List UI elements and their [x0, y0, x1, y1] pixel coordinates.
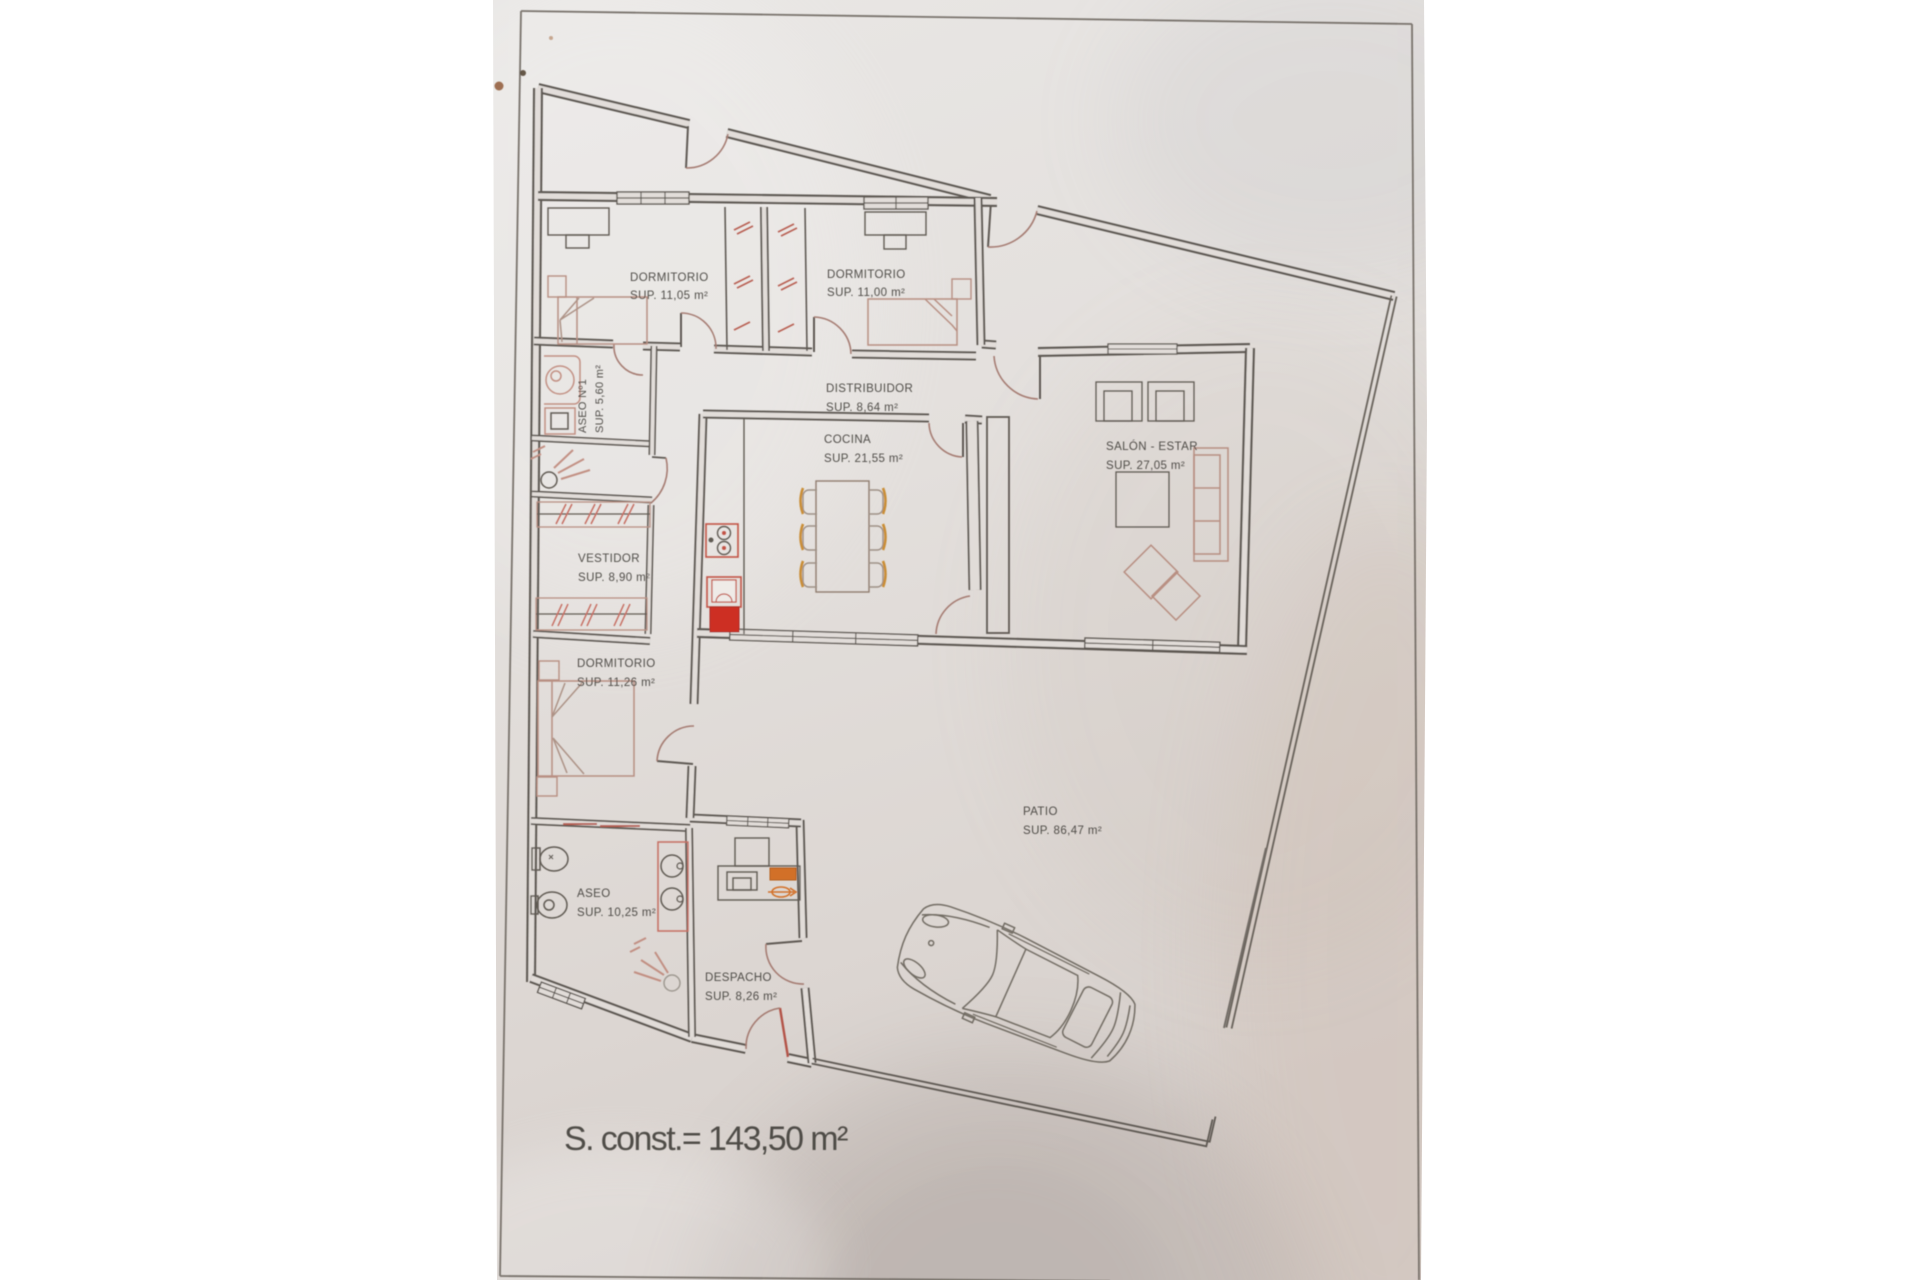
svg-text:VESTIDOR: VESTIDOR — [578, 553, 640, 565]
svg-text:DESPACHO: DESPACHO — [705, 972, 772, 984]
svg-text:SUP. 11,05 m²: SUP. 11,05 m² — [630, 290, 708, 302]
svg-text:SUP. 11,26 m²: SUP. 11,26 m² — [577, 677, 655, 689]
svg-text:SUP. 27,05 m²: SUP. 27,05 m² — [1106, 460, 1185, 472]
svg-text:COCINA: COCINA — [824, 434, 871, 446]
svg-text:DORMITORIO: DORMITORIO — [630, 272, 709, 284]
svg-text:DORMITORIO: DORMITORIO — [827, 269, 906, 281]
svg-text:SUP. 5,60 m²: SUP. 5,60 m² — [594, 365, 606, 433]
svg-text:S. const.= 143,50 m²: S. const.= 143,50 m² — [564, 1120, 848, 1158]
svg-text:SUP. 8,64 m²: SUP. 8,64 m² — [826, 402, 898, 414]
svg-text:DORMITORIO: DORMITORIO — [577, 658, 656, 670]
svg-text:SUP. 21,55 m²: SUP. 21,55 m² — [824, 453, 903, 465]
svg-text:SUP. 8,90 m²: SUP. 8,90 m² — [578, 572, 650, 584]
svg-text:SUP. 86,47 m²: SUP. 86,47 m² — [1023, 825, 1102, 837]
svg-text:SUP. 11,00 m²: SUP. 11,00 m² — [827, 287, 905, 299]
svg-text:PATIO: PATIO — [1023, 806, 1058, 818]
svg-text:ASEO: ASEO — [577, 888, 611, 900]
svg-text:DISTRIBUIDOR: DISTRIBUIDOR — [826, 383, 913, 395]
svg-text:SALÓN - ESTAR: SALÓN - ESTAR — [1106, 440, 1198, 453]
svg-text:ASEO Nº1: ASEO Nº1 — [577, 379, 589, 433]
svg-text:SUP. 10,25 m²: SUP. 10,25 m² — [577, 907, 656, 919]
svg-text:SUP. 8,26 m²: SUP. 8,26 m² — [705, 991, 777, 1003]
